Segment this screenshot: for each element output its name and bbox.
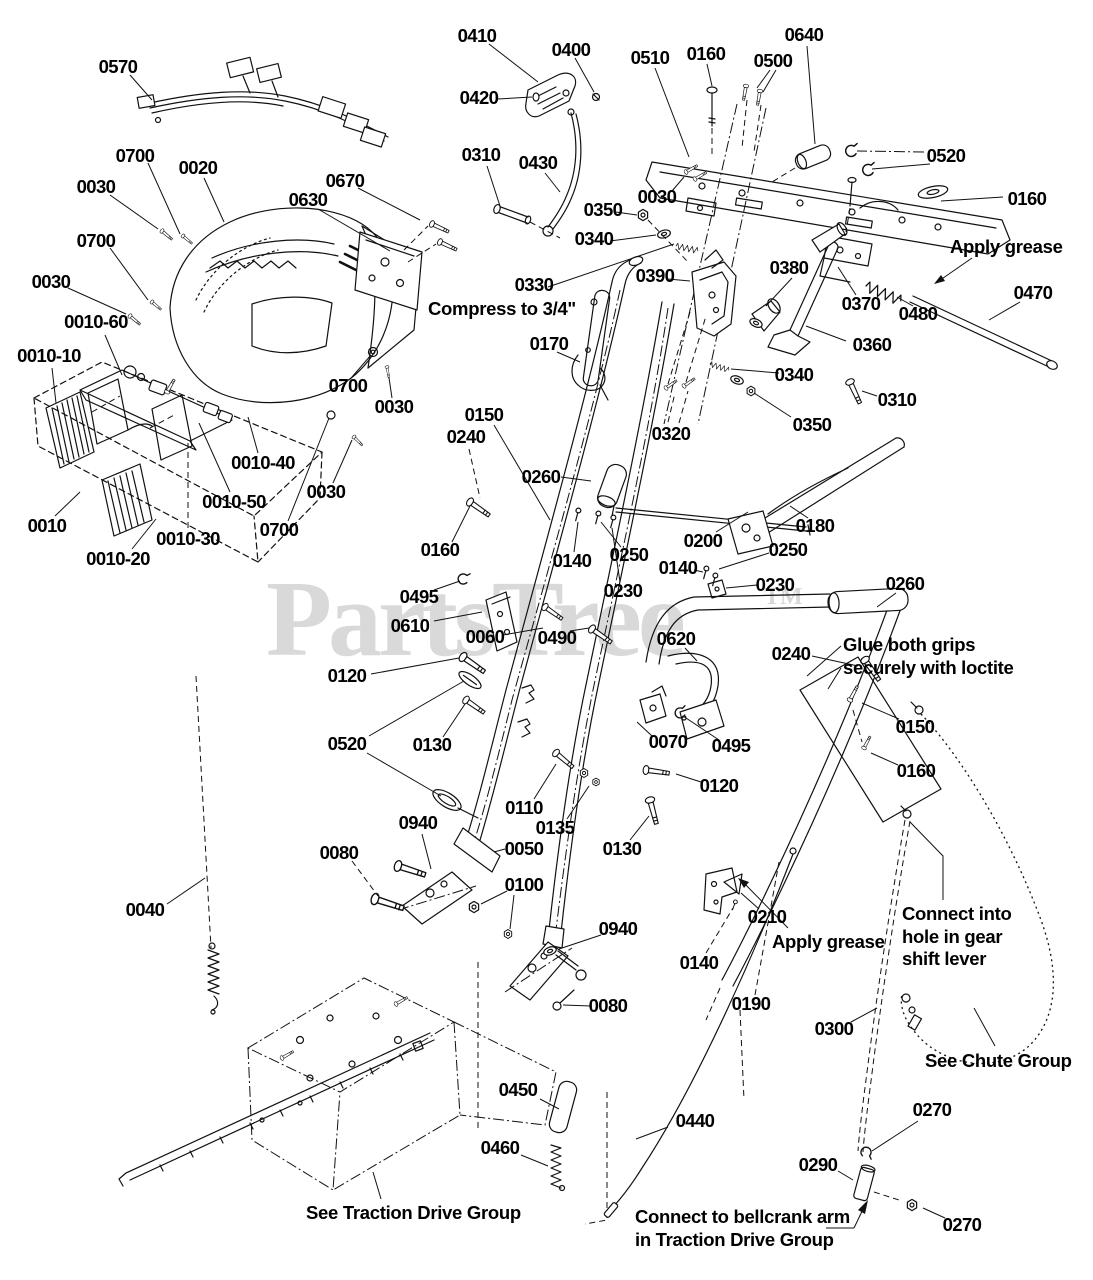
part-number-callout: 0030 — [77, 176, 116, 198]
part-number-callout: 0520 — [328, 733, 367, 755]
part-number-callout: 0270 — [943, 1214, 982, 1236]
part-number-callout: 0180 — [796, 515, 835, 537]
part-number-callout: 0495 — [400, 586, 439, 608]
part-number-callout: 0320 — [652, 423, 691, 445]
part-number-callout: 0640 — [785, 24, 824, 46]
part-number-callout: 0260 — [886, 573, 925, 595]
part-number-callout: 0010-50 — [202, 491, 266, 513]
part-number-callout: 0360 — [853, 334, 892, 356]
part-number-callout: 0240 — [772, 643, 811, 665]
part-number-callout: 0130 — [603, 838, 642, 860]
part-number-callout: 0120 — [700, 775, 739, 797]
part-number-callout: 0130 — [413, 734, 452, 756]
part-number-callout: 0140 — [659, 557, 698, 579]
part-number-callout: 0370 — [842, 293, 881, 315]
part-number-callout: 0380 — [770, 257, 809, 279]
part-number-callout: 0410 — [458, 25, 497, 47]
part-number-callout: 0350 — [584, 199, 623, 221]
part-number-callout: 0270 — [913, 1099, 952, 1121]
part-number-callout: 0110 — [505, 797, 543, 819]
part-number-callout: 0080 — [320, 842, 359, 864]
part-number-callout: 0040 — [126, 899, 165, 921]
part-number-callout: 0160 — [687, 43, 726, 65]
part-number-callout: 0250 — [769, 539, 808, 561]
part-number-callout: 0610 — [391, 615, 430, 637]
part-number-callout: 0010 — [28, 515, 67, 537]
part-number-callout: 0520 — [927, 145, 966, 167]
part-number-callout: 0310 — [878, 389, 917, 411]
part-number-callout: 0030 — [638, 186, 677, 208]
part-number-callout: 0400 — [552, 39, 591, 61]
part-number-callout: 0260 — [522, 466, 561, 488]
part-number-callout: 0030 — [375, 396, 414, 418]
callout-layer: 057007000020003006700630070000300010-600… — [0, 0, 1093, 1280]
part-number-callout: 0940 — [599, 918, 638, 940]
part-number-callout: 0150 — [896, 716, 935, 738]
diagram-note: Glue both grips securely with loctite — [843, 634, 1014, 679]
part-number-callout: 0010-20 — [86, 548, 150, 570]
diagram-note: Connect to bellcrank arm in Traction Dri… — [635, 1206, 850, 1251]
part-number-callout: 0010-60 — [64, 311, 128, 333]
part-number-callout: 0210 — [748, 906, 787, 928]
part-number-callout: 0050 — [505, 838, 544, 860]
part-number-callout: 0120 — [328, 665, 367, 687]
part-number-callout: 0460 — [481, 1137, 520, 1159]
diagram-note: Connect into hole in gear shift lever — [902, 903, 1011, 971]
part-number-callout: 0700 — [260, 519, 299, 541]
part-number-callout: 0330 — [515, 274, 554, 296]
diagram-note: See Chute Group — [925, 1050, 1072, 1073]
part-number-callout: 0700 — [329, 375, 368, 397]
part-number-callout: 0080 — [589, 995, 628, 1017]
part-number-callout: 0290 — [799, 1154, 838, 1176]
part-number-callout: 0010-10 — [17, 345, 81, 367]
part-number-callout: 0160 — [421, 539, 460, 561]
part-number-callout: 0350 — [793, 414, 832, 436]
part-number-callout: 0940 — [399, 812, 438, 834]
diagram-note: Apply grease — [950, 236, 1063, 259]
part-number-callout: 0490 — [538, 627, 577, 649]
part-number-callout: 0190 — [732, 993, 771, 1015]
part-number-callout: 0250 — [610, 544, 649, 566]
part-number-callout: 0230 — [604, 580, 643, 602]
part-number-callout: 0420 — [460, 87, 499, 109]
part-number-callout: 0010-30 — [156, 528, 220, 550]
part-number-callout: 0150 — [465, 404, 504, 426]
part-number-callout: 0470 — [1014, 282, 1053, 304]
part-number-callout: 0495 — [712, 735, 751, 757]
parts-diagram-page: PartsTree TM — [0, 0, 1093, 1280]
part-number-callout: 0160 — [897, 760, 936, 782]
part-number-callout: 0340 — [575, 228, 614, 250]
part-number-callout: 0700 — [116, 145, 155, 167]
part-number-callout: 0070 — [649, 731, 688, 753]
diagram-note: Compress to 3/4" — [428, 298, 576, 321]
part-number-callout: 0030 — [307, 481, 346, 503]
part-number-callout: 0510 — [631, 47, 670, 69]
part-number-callout: 0140 — [680, 952, 719, 974]
diagram-note: See Traction Drive Group — [306, 1202, 521, 1225]
part-number-callout: 0240 — [447, 426, 486, 448]
part-number-callout: 0700 — [77, 230, 116, 252]
part-number-callout: 0670 — [326, 170, 365, 192]
part-number-callout: 0390 — [636, 265, 675, 287]
part-number-callout: 0020 — [179, 157, 218, 179]
part-number-callout: 0340 — [775, 364, 814, 386]
part-number-callout: 0620 — [657, 628, 696, 650]
part-number-callout: 0440 — [676, 1110, 715, 1132]
part-number-callout: 0480 — [899, 303, 938, 325]
part-number-callout: 0135 — [536, 817, 575, 839]
part-number-callout: 0100 — [505, 874, 544, 896]
part-number-callout: 0310 — [462, 144, 501, 166]
part-number-callout: 0430 — [519, 152, 558, 174]
part-number-callout: 0500 — [754, 50, 793, 72]
part-number-callout: 0170 — [530, 333, 569, 355]
part-number-callout: 0230 — [756, 574, 795, 596]
part-number-callout: 0200 — [684, 530, 723, 552]
part-number-callout: 0010-40 — [231, 452, 295, 474]
part-number-callout: 0450 — [499, 1079, 538, 1101]
diagram-note: Apply grease — [772, 931, 885, 954]
part-number-callout: 0030 — [32, 271, 71, 293]
part-number-callout: 0140 — [553, 550, 592, 572]
part-number-callout: 0570 — [99, 56, 138, 78]
part-number-callout: 0300 — [815, 1018, 854, 1040]
part-number-callout: 0160 — [1008, 188, 1047, 210]
part-number-callout: 0060 — [466, 626, 505, 648]
part-number-callout: 0630 — [289, 189, 328, 211]
